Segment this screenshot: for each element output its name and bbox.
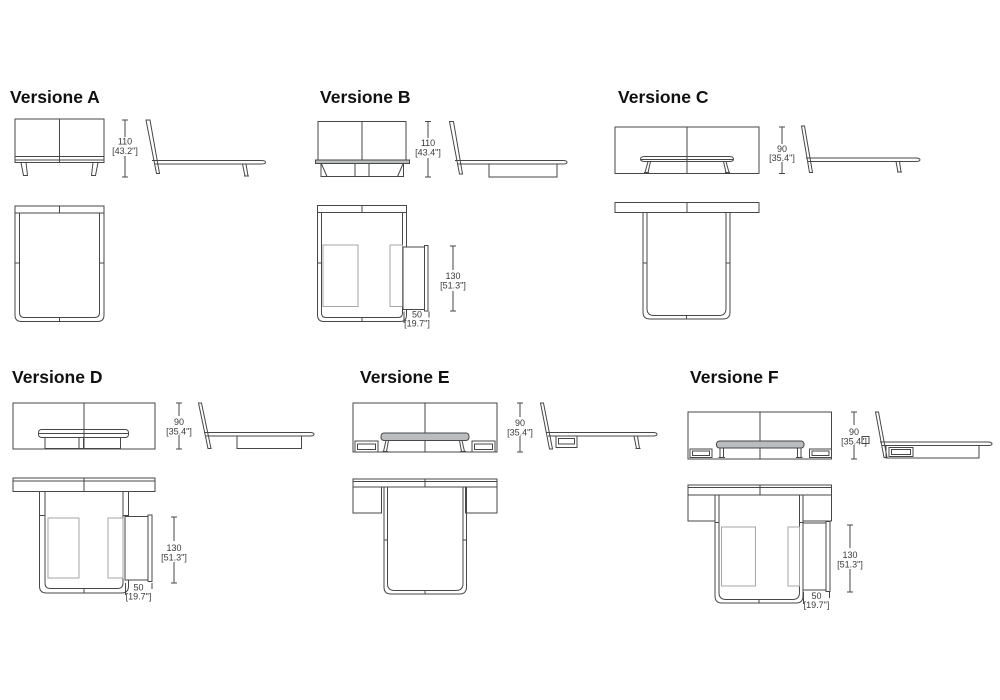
versione-d-height-dimension: 90 [35.4"]: [166, 403, 192, 449]
versione-d-plan-view: [13, 478, 155, 593]
versione-f-plan-view: [688, 485, 832, 603]
versione-f-depth-dimension: 50 [19.7"]: [804, 591, 830, 610]
versione-a-plan-view: [15, 206, 104, 322]
pull-out-drawer: [403, 247, 425, 310]
dim-length-cm: 130: [842, 550, 857, 560]
dim-depth-inch: [19.7"]: [404, 319, 430, 329]
dim-height-cm: 90: [174, 417, 184, 427]
versione-e-front-view: [353, 403, 497, 452]
versione-e-drawing: 90 [35.4"]: [353, 403, 657, 594]
versione-f-height-dimension: 90 [35.4"]: [841, 412, 867, 459]
technical-drawing-canvas: 110 [43.2"]: [0, 0, 1000, 700]
pull-out-drawer: [803, 523, 826, 590]
versione-b-plan-view: [318, 206, 429, 322]
versione-b-side-view: [450, 122, 568, 178]
dim-height-inch: [35.4"]: [769, 153, 795, 163]
dim-height-cm: 110: [118, 137, 132, 147]
dim-height-inch: [43.2"]: [112, 146, 138, 156]
versione-a-side-view: [146, 120, 266, 176]
versione-d-length-dimension: 130 [51.3"]: [161, 517, 187, 583]
dim-length-cm: 130: [166, 543, 181, 553]
versione-e-plan-view: [353, 479, 497, 594]
dim-length-inch: [51.3"]: [837, 560, 863, 570]
dim-height-inch: [35.4"]: [507, 428, 533, 438]
dim-height-inch: [43.4"]: [415, 148, 441, 158]
versione-d-drawing: 90 [35.4"] 130 [51.3"] 50 [19.7"]: [13, 403, 314, 602]
versione-d-front-view: [13, 403, 155, 449]
dim-depth-inch: [19.7"]: [804, 600, 830, 610]
versione-a-drawing: 110 [43.2"]: [15, 119, 266, 322]
versione-c-drawing: 90 [35.4"]: [615, 126, 920, 319]
technical-sheet: Versione A Versione B Versione C Version…: [0, 0, 1000, 700]
versione-d-depth-dimension: 50 [19.7"]: [126, 583, 153, 602]
versione-a-front-view: [15, 119, 104, 176]
dim-length-inch: [51.3"]: [161, 553, 187, 563]
versione-a-height-dimension: 110 [43.2"]: [112, 120, 138, 177]
versione-d-side-view: [199, 403, 315, 449]
versione-e-side-view: [541, 403, 658, 449]
dim-height-cm: 90: [849, 427, 859, 437]
dim-depth-inch: [19.7"]: [126, 592, 152, 602]
dim-height-cm: 90: [515, 418, 525, 428]
versione-f-drawing: 90 [35.4"] 130 [51.3"] 50 [19.7"]: [688, 412, 992, 610]
versione-c-side-view: [802, 126, 921, 173]
versione-c-plan-view: [615, 203, 759, 320]
versione-f-side-view: [862, 412, 992, 458]
versione-c-height-dimension: 90 [35.4"]: [769, 127, 795, 174]
versione-b-front-view: [316, 122, 410, 177]
versione-b-height-dimension: 110 [43.4"]: [415, 122, 441, 178]
versione-b-depth-dimension: 50 [19.7"]: [404, 310, 430, 329]
versione-b-length-dimension: 130 [51.3"]: [440, 246, 466, 311]
dim-height-inch: [35.4"]: [841, 437, 867, 447]
versione-f-length-dimension: 130 [51.3"]: [837, 525, 863, 592]
dim-length-inch: [51.3"]: [440, 281, 466, 291]
versione-b-drawing: 110 [43.4"] 130 [51.3"] 50 [19.7"]: [316, 122, 568, 329]
dim-height-cm: 110: [421, 138, 435, 148]
versione-e-height-dimension: 90 [35.4"]: [507, 403, 533, 452]
versione-c-front-view: [615, 127, 759, 174]
dim-height-inch: [35.4"]: [166, 427, 192, 437]
dim-length-cm: 130: [445, 271, 460, 281]
versione-f-front-view: [688, 412, 832, 459]
pull-out-drawer: [125, 517, 148, 581]
